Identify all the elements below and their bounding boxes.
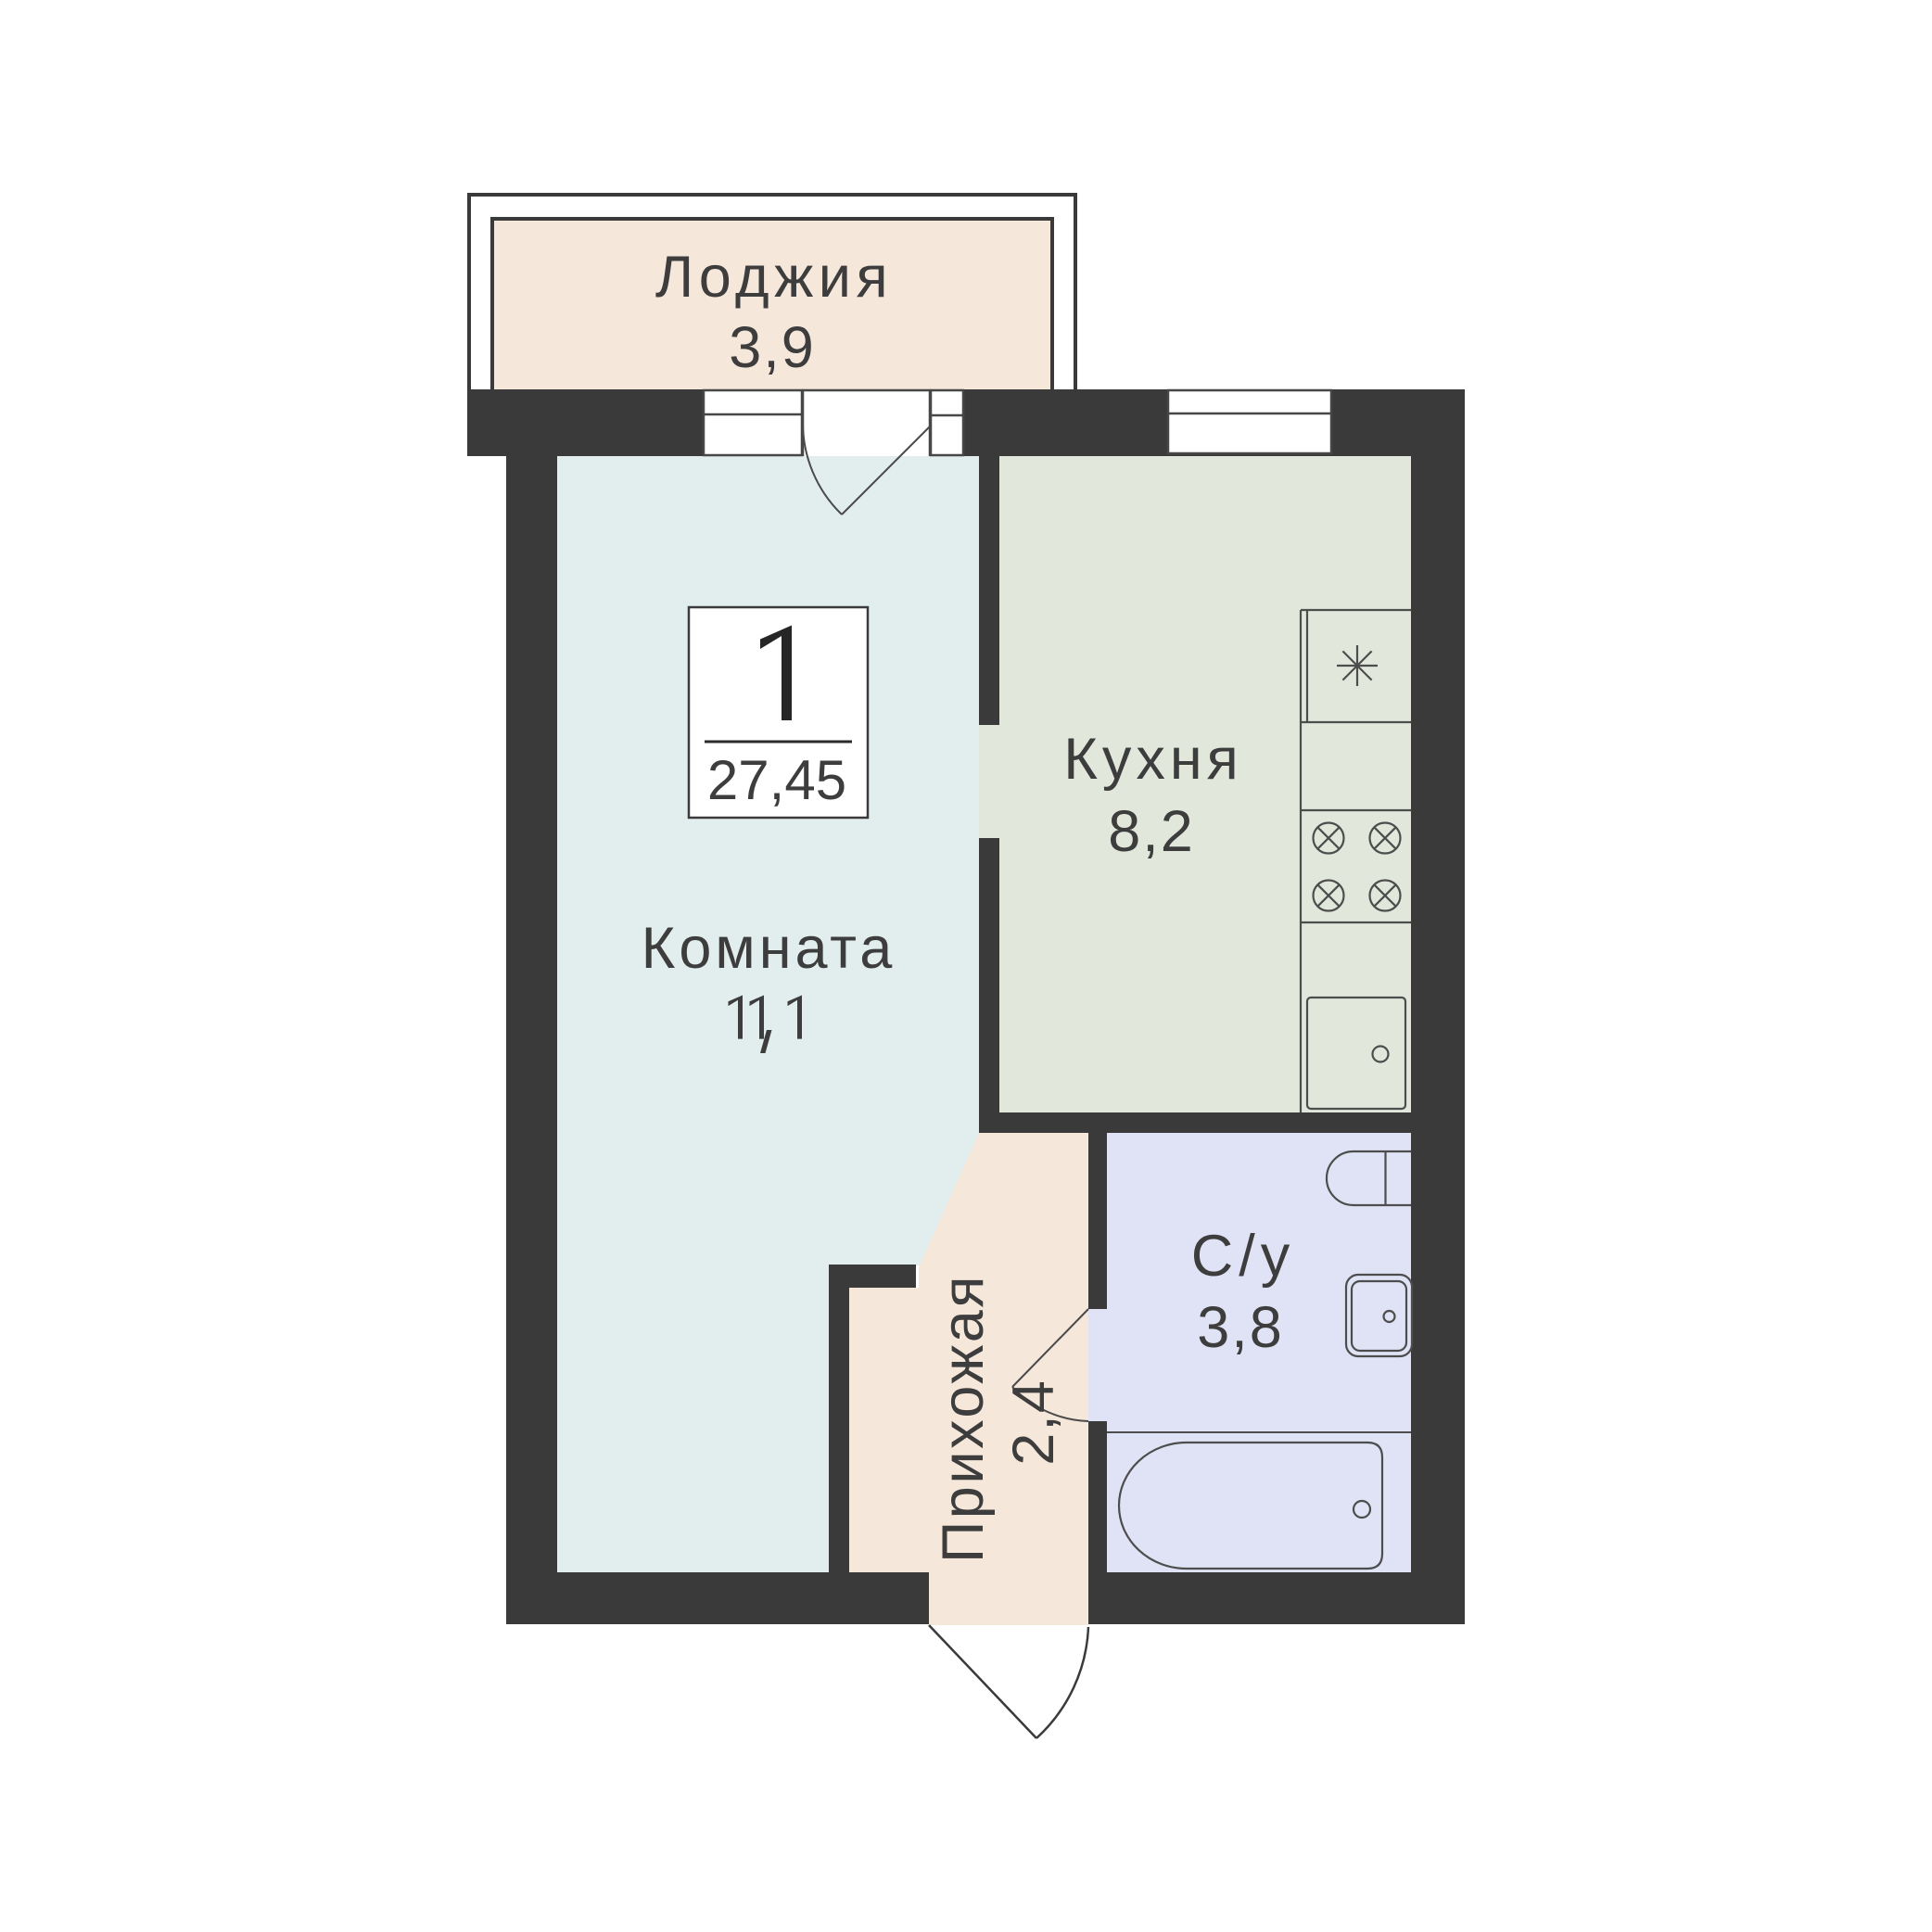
svg-text:27,45: 27,45 [707,749,846,811]
svg-text:С/у: С/у [1191,1224,1296,1289]
svg-text:Прихожая: Прихожая [931,1274,996,1563]
svg-text:Лоджия: Лоджия [655,245,893,310]
svg-text:Кухня: Кухня [1063,727,1243,792]
svg-text:8,2: 8,2 [1108,799,1195,864]
svg-text:Комната: Комната [642,916,896,981]
svg-text:3,8: 3,8 [1197,1295,1284,1360]
svg-text:2,4: 2,4 [1001,1379,1066,1466]
svg-text:3,9: 3,9 [729,315,816,380]
